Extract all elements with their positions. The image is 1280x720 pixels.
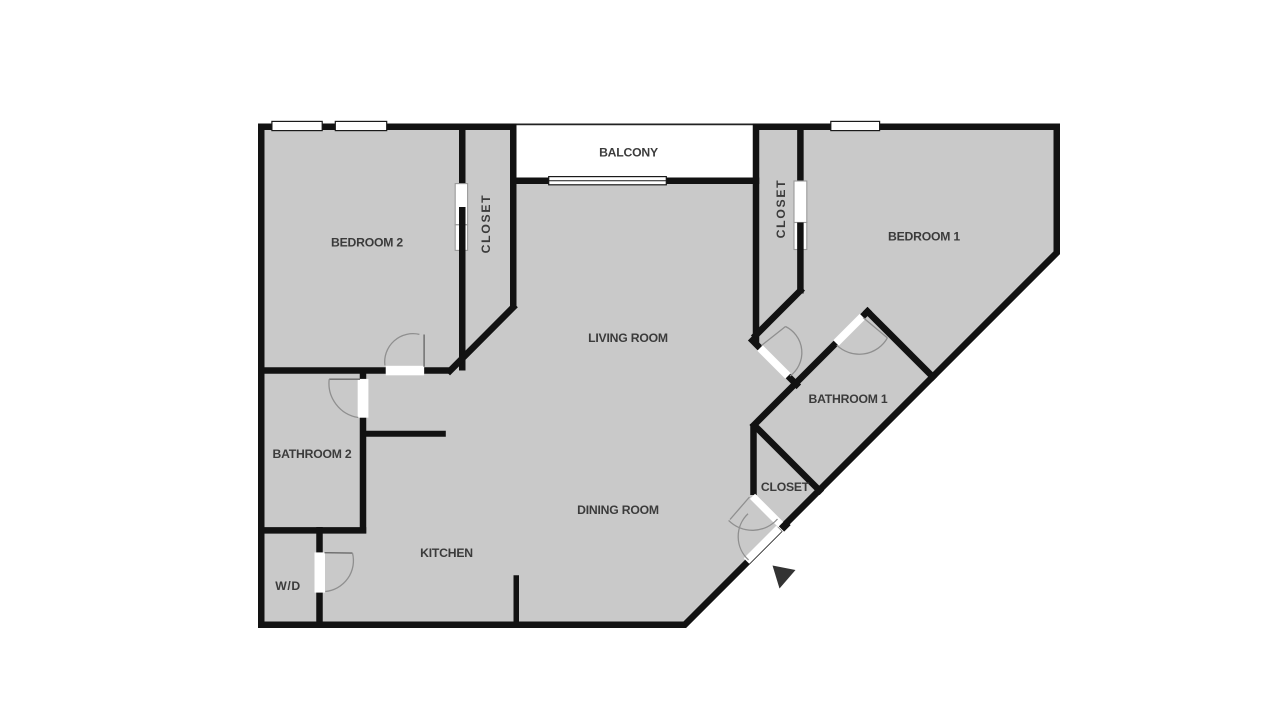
svg-text:LIVING ROOM: LIVING ROOM	[588, 331, 668, 345]
svg-text:CLOSET: CLOSET	[774, 179, 788, 239]
svg-text:BATHROOM 1: BATHROOM 1	[808, 392, 887, 406]
svg-text:BEDROOM 1: BEDROOM 1	[888, 230, 960, 244]
svg-text:CLOSET: CLOSET	[479, 194, 493, 254]
svg-text:CLOSET: CLOSET	[761, 480, 810, 494]
svg-text:KITCHEN: KITCHEN	[420, 546, 473, 560]
svg-text:W/D: W/D	[275, 579, 301, 593]
svg-text:DINING ROOM: DINING ROOM	[577, 503, 659, 517]
svg-text:BEDROOM 2: BEDROOM 2	[331, 236, 403, 250]
svg-text:BALCONY: BALCONY	[599, 146, 658, 160]
svg-text:BATHROOM 2: BATHROOM 2	[272, 447, 351, 461]
